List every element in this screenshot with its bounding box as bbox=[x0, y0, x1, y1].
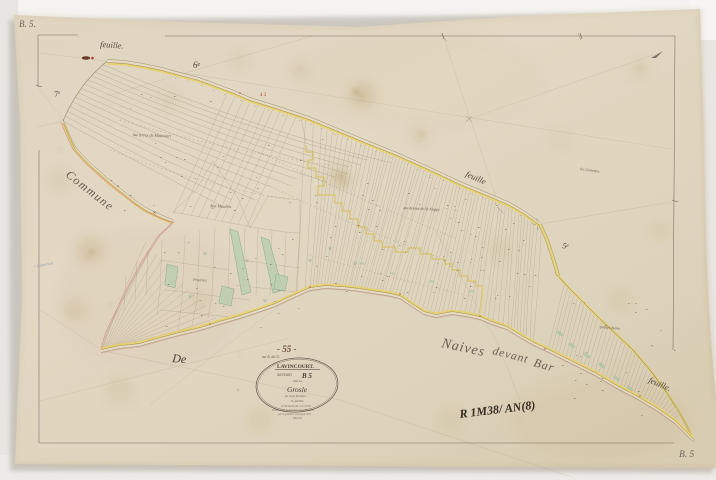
svg-text:×: × bbox=[236, 388, 240, 394]
svg-text:×: × bbox=[152, 209, 157, 217]
svg-text:en sept feuilles: en sept feuilles bbox=[285, 394, 306, 398]
svg-text:4 3: 4 3 bbox=[260, 93, 267, 98]
svg-text:Grosle: Grosle bbox=[287, 385, 308, 394]
svg-text:- 55 -: - 55 - bbox=[277, 344, 297, 354]
svg-text:Terminée sur le terrain le 10: Terminée sur le terrain le 10 juillet 18… bbox=[272, 409, 315, 412]
svg-text:B. 5: B. 5 bbox=[679, 450, 695, 460]
svg-text:Section: Section bbox=[277, 373, 292, 378]
svg-text:dite la: dite la bbox=[293, 379, 302, 383]
svg-text:Prairies: Prairies bbox=[192, 277, 207, 283]
svg-text:B 5: B 5 bbox=[301, 372, 312, 380]
svg-text:Marlier: Marlier bbox=[292, 416, 303, 420]
svg-text:De: De bbox=[171, 351, 188, 366]
svg-text:5e feuille: 5e feuille bbox=[291, 399, 304, 403]
svg-text:au 4e du 5e: au 4e du 5e bbox=[262, 354, 280, 359]
svg-text:B. 5.: B. 5. bbox=[19, 19, 36, 29]
svg-text:feuille.: feuille. bbox=[100, 39, 124, 51]
svg-text:LAVINCOURT.: LAVINCOURT. bbox=[277, 364, 315, 370]
svg-text:à l'échelle de 1 à 1250: à l'échelle de 1 à 1250 bbox=[281, 404, 311, 408]
